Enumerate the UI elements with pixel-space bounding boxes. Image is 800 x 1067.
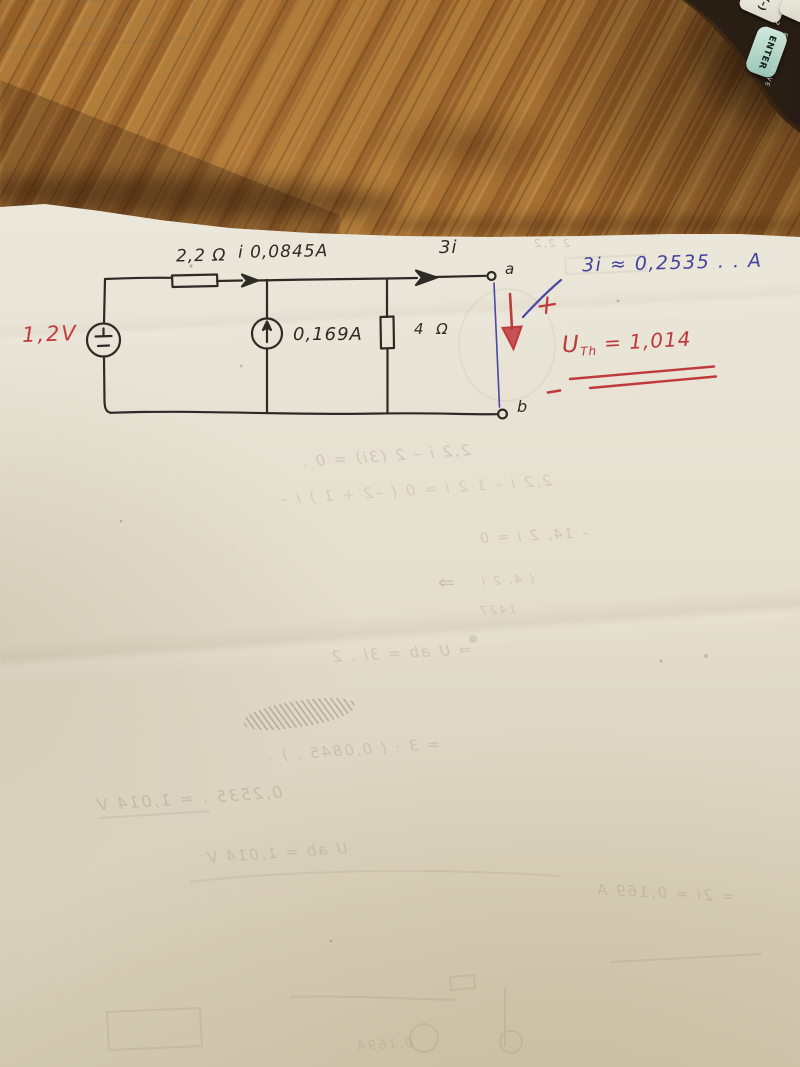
voltage-source-label: 1,2V — [22, 321, 79, 347]
uth-symbol: U — [561, 331, 580, 358]
blue-terminal-line — [494, 283, 500, 407]
branch-current-label: i 0,0845A — [238, 241, 329, 263]
dependent-source-label: 3i — [439, 237, 457, 258]
ghost-arrow: ⇒ — [436, 570, 455, 594]
top-resistor-label: 2,2 Ω — [176, 246, 227, 267]
terminal-a-node — [488, 272, 496, 280]
terminal-a-label: a — [505, 260, 515, 278]
minus-sign-stroke — [548, 391, 560, 393]
uth-value: = 1,014 — [596, 327, 692, 356]
ghost-fraction-bottom: 1427 — [478, 602, 517, 618]
blue-pointer-curve — [523, 280, 561, 317]
resistor-symbol-right — [381, 317, 395, 349]
blue-pen-strokes — [494, 280, 561, 407]
uth-subscript: Th — [580, 344, 598, 359]
ghost-boxed-result-text: i = 0,0845. . A — [28, 9, 167, 34]
right-resistor-label: 4 Ω — [414, 320, 452, 338]
uth-underline-2 — [590, 377, 716, 389]
resistor-symbol-top — [172, 275, 218, 288]
red-voltage-arrow-head — [503, 327, 522, 350]
blue-result-note: 3i ≈ 0,2535 . . A — [582, 250, 763, 277]
terminal-b-label: b — [517, 397, 528, 416]
dependent-current-arrow-symbol — [416, 271, 437, 286]
terminal-b-node — [498, 410, 507, 419]
ghost-pencil-marks: 2 2,2 — [532, 237, 570, 250]
ghost-fraction-top: ( 4, 2 i — [480, 572, 535, 589]
current-source-label: 0,169A — [293, 324, 363, 345]
circuit-drawing — [0, 0, 800, 1067]
ghost-circuit-label: 0,169A — [355, 1036, 414, 1054]
red-voltage-arrow-shaft — [510, 294, 512, 329]
uth-underline-1 — [570, 367, 714, 380]
